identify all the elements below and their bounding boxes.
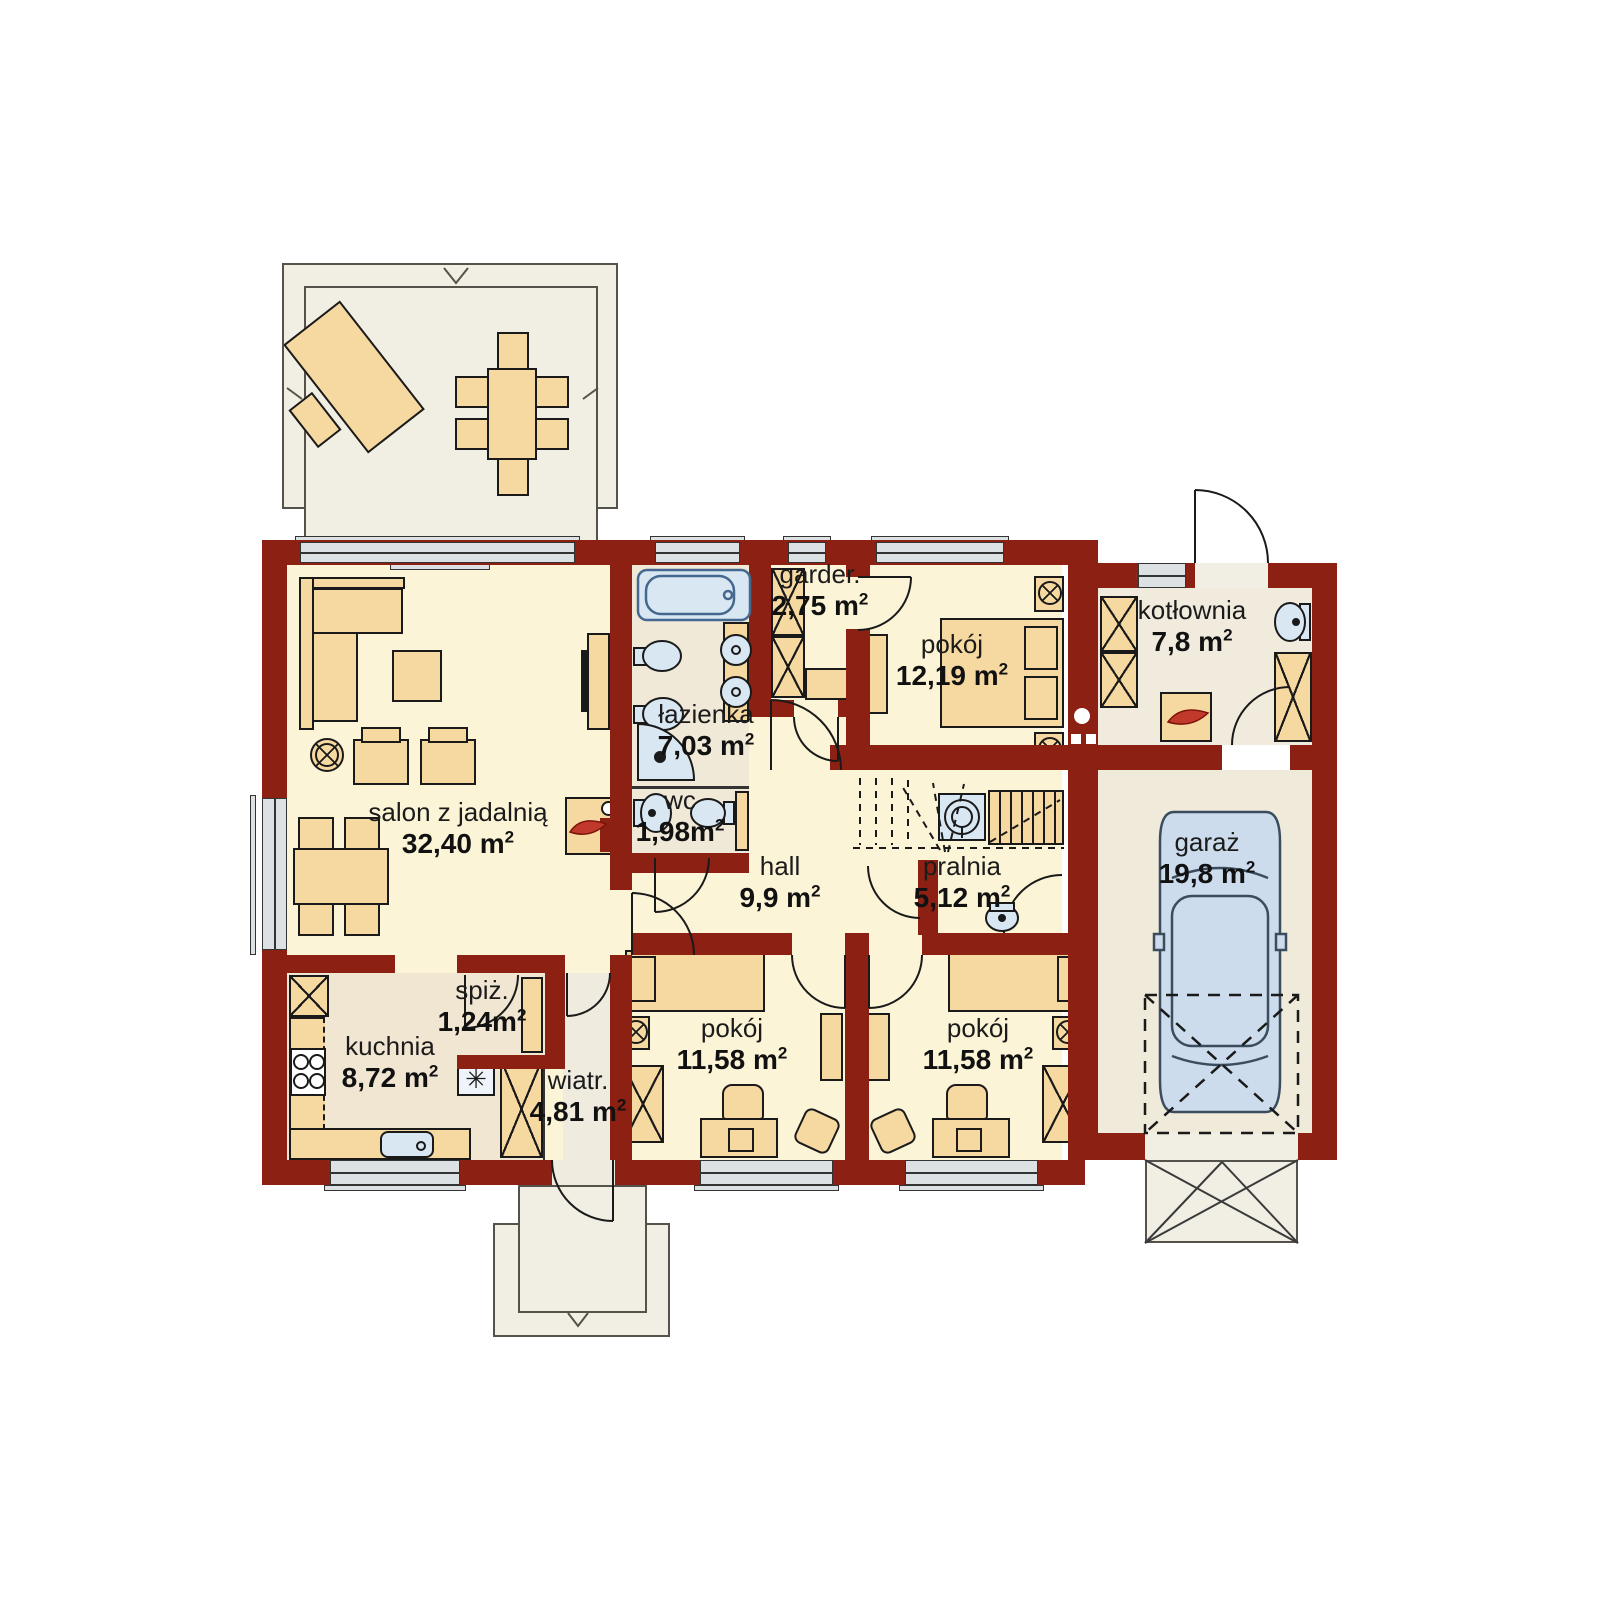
desk-room2-drawer <box>956 1128 982 1152</box>
coffee-table <box>392 650 442 702</box>
wardrobe-shelf <box>805 668 850 700</box>
terrace-chair-l2 <box>455 418 489 450</box>
bathroom-window <box>655 542 740 563</box>
wall-right-outer <box>1312 563 1337 1160</box>
terrace-chair-top <box>497 332 529 370</box>
boiler-closet-3-icon <box>1274 652 1312 742</box>
boiler-closet-2-icon <box>1100 652 1138 708</box>
boiler-unit <box>1160 692 1212 742</box>
label-hall: hall 9,9 m2 <box>739 852 820 914</box>
label-salon: salon z jadalnią 32,40 m2 <box>368 798 547 860</box>
wall-boiler-bottom-right <box>1290 745 1336 770</box>
wall-salon-bath <box>610 565 632 890</box>
shelf-room2 <box>867 1013 890 1081</box>
sofa-seat-top <box>312 588 403 634</box>
terrace-chair-bottom <box>497 458 529 496</box>
wardrobe-closet-2-icon <box>771 636 805 698</box>
label-garaz: garaż 19,8 m2 <box>1159 828 1256 890</box>
label-kotlownia: kotłownia 7,8 m2 <box>1138 596 1246 658</box>
entry-threshold <box>552 1160 615 1185</box>
armchair-1-back <box>361 727 401 743</box>
label-garderoba: garder. 2,75 m2 <box>772 560 869 622</box>
kitchen-window <box>330 1160 460 1185</box>
label-wiatrolap: wiatr. 4,81 m2 <box>530 1066 627 1128</box>
room-area: 32,40 m <box>402 828 505 859</box>
label-pokoj-1: pokój 11,58 m2 <box>677 1014 788 1076</box>
armchair-2 <box>420 739 476 785</box>
wall-kitchen-top <box>262 955 395 973</box>
dining-chair-1 <box>298 817 334 850</box>
wall-wardrobe-bottom-a <box>749 700 794 717</box>
double-bed-pillow-1 <box>1024 626 1058 670</box>
driveway-apron <box>1145 1160 1298 1243</box>
label-wc: wc 1,98m2 <box>636 786 725 848</box>
armchair-1 <box>353 739 409 785</box>
stove-icon <box>290 1048 326 1096</box>
wall-house-garage <box>1068 540 1098 1160</box>
double-bed-pillow-2 <box>1024 676 1058 720</box>
wall-bath-wardrobe <box>749 565 771 705</box>
sill-room2 <box>899 1185 1044 1191</box>
sill-left <box>250 795 256 955</box>
plant-icon <box>310 738 344 772</box>
label-lazienka: łazienka 7,03 m2 <box>658 700 755 762</box>
label-spizarnia: spiż. 1,24m2 <box>438 976 527 1038</box>
room-area-sup: 2 <box>505 827 514 846</box>
shelf-room1 <box>820 1013 843 1081</box>
terrace-table <box>487 368 537 460</box>
wall-rooms-top-left <box>632 933 792 955</box>
desk-room1-drawer <box>728 1128 754 1152</box>
wall-bedroom-bottom <box>830 745 1070 770</box>
wall-vestibule-room <box>610 955 632 1160</box>
boiler-vent <box>1138 563 1186 588</box>
wall-pantry-right <box>545 955 565 1055</box>
wall-wc-bottom <box>610 853 749 873</box>
wall-rooms-top-right <box>922 933 1068 955</box>
garage-floor <box>1098 770 1312 1133</box>
washing-machine-icon <box>938 793 986 841</box>
wall-bedroom-left <box>846 629 870 745</box>
terrace-chair-l1 <box>455 376 489 408</box>
tv-cabinet <box>587 633 610 730</box>
desk-chair-room1 <box>722 1084 764 1120</box>
wall-boiler-bottom-left <box>1098 745 1222 770</box>
bed-room1-pillow <box>630 956 656 1002</box>
label-pokoj-2: pokój 11,58 m2 <box>923 1014 1034 1076</box>
kitchen-sink-icon <box>380 1131 434 1158</box>
room1-window <box>700 1160 833 1185</box>
entry-porch <box>518 1185 647 1313</box>
boiler-door-threshold <box>1195 563 1268 588</box>
wall-garage-bottom-left <box>1085 1133 1145 1160</box>
room-name: salon z jadalnią <box>368 798 547 827</box>
terrace-chair-r1 <box>535 376 569 408</box>
sofa-seat-left <box>312 632 358 722</box>
dining-chair-3 <box>298 903 334 936</box>
wc-shelf <box>735 791 749 851</box>
desk-chair-room2 <box>946 1084 988 1120</box>
tv-icon <box>581 650 588 712</box>
label-kuchnia: kuchnia 8,72 m2 <box>342 1032 439 1094</box>
sill-room1 <box>694 1185 839 1191</box>
terrace-slider-window <box>300 542 575 563</box>
staircase-steps <box>988 790 1064 845</box>
sill-kitchen <box>324 1185 466 1191</box>
room2-window <box>905 1160 1038 1185</box>
terrace-chair-r2 <box>535 418 569 450</box>
nightstand-lamp-1-icon <box>1038 581 1062 605</box>
dining-chair-4 <box>344 903 380 936</box>
boiler-closet-1-icon <box>1100 596 1138 652</box>
kitchen-cabinet-icon <box>289 975 329 1017</box>
armchair-2-back <box>428 727 468 743</box>
door-boiler-entry <box>1195 490 1268 563</box>
wall-garage-bottom-right <box>1298 1133 1337 1160</box>
wall-rooms-divider <box>845 933 869 1160</box>
bedroom-window <box>876 542 1004 563</box>
label-pralnia: pralnia 5,12 m2 <box>914 852 1011 914</box>
salon-side-window <box>262 798 287 950</box>
floor-plan: ✳ salon z jadalnią 32,40 m2 łaz <box>0 0 1600 1600</box>
garage-door-threshold <box>1145 1133 1298 1160</box>
label-pokoj-sypialnia: pokój 12,19 m2 <box>896 630 1008 692</box>
